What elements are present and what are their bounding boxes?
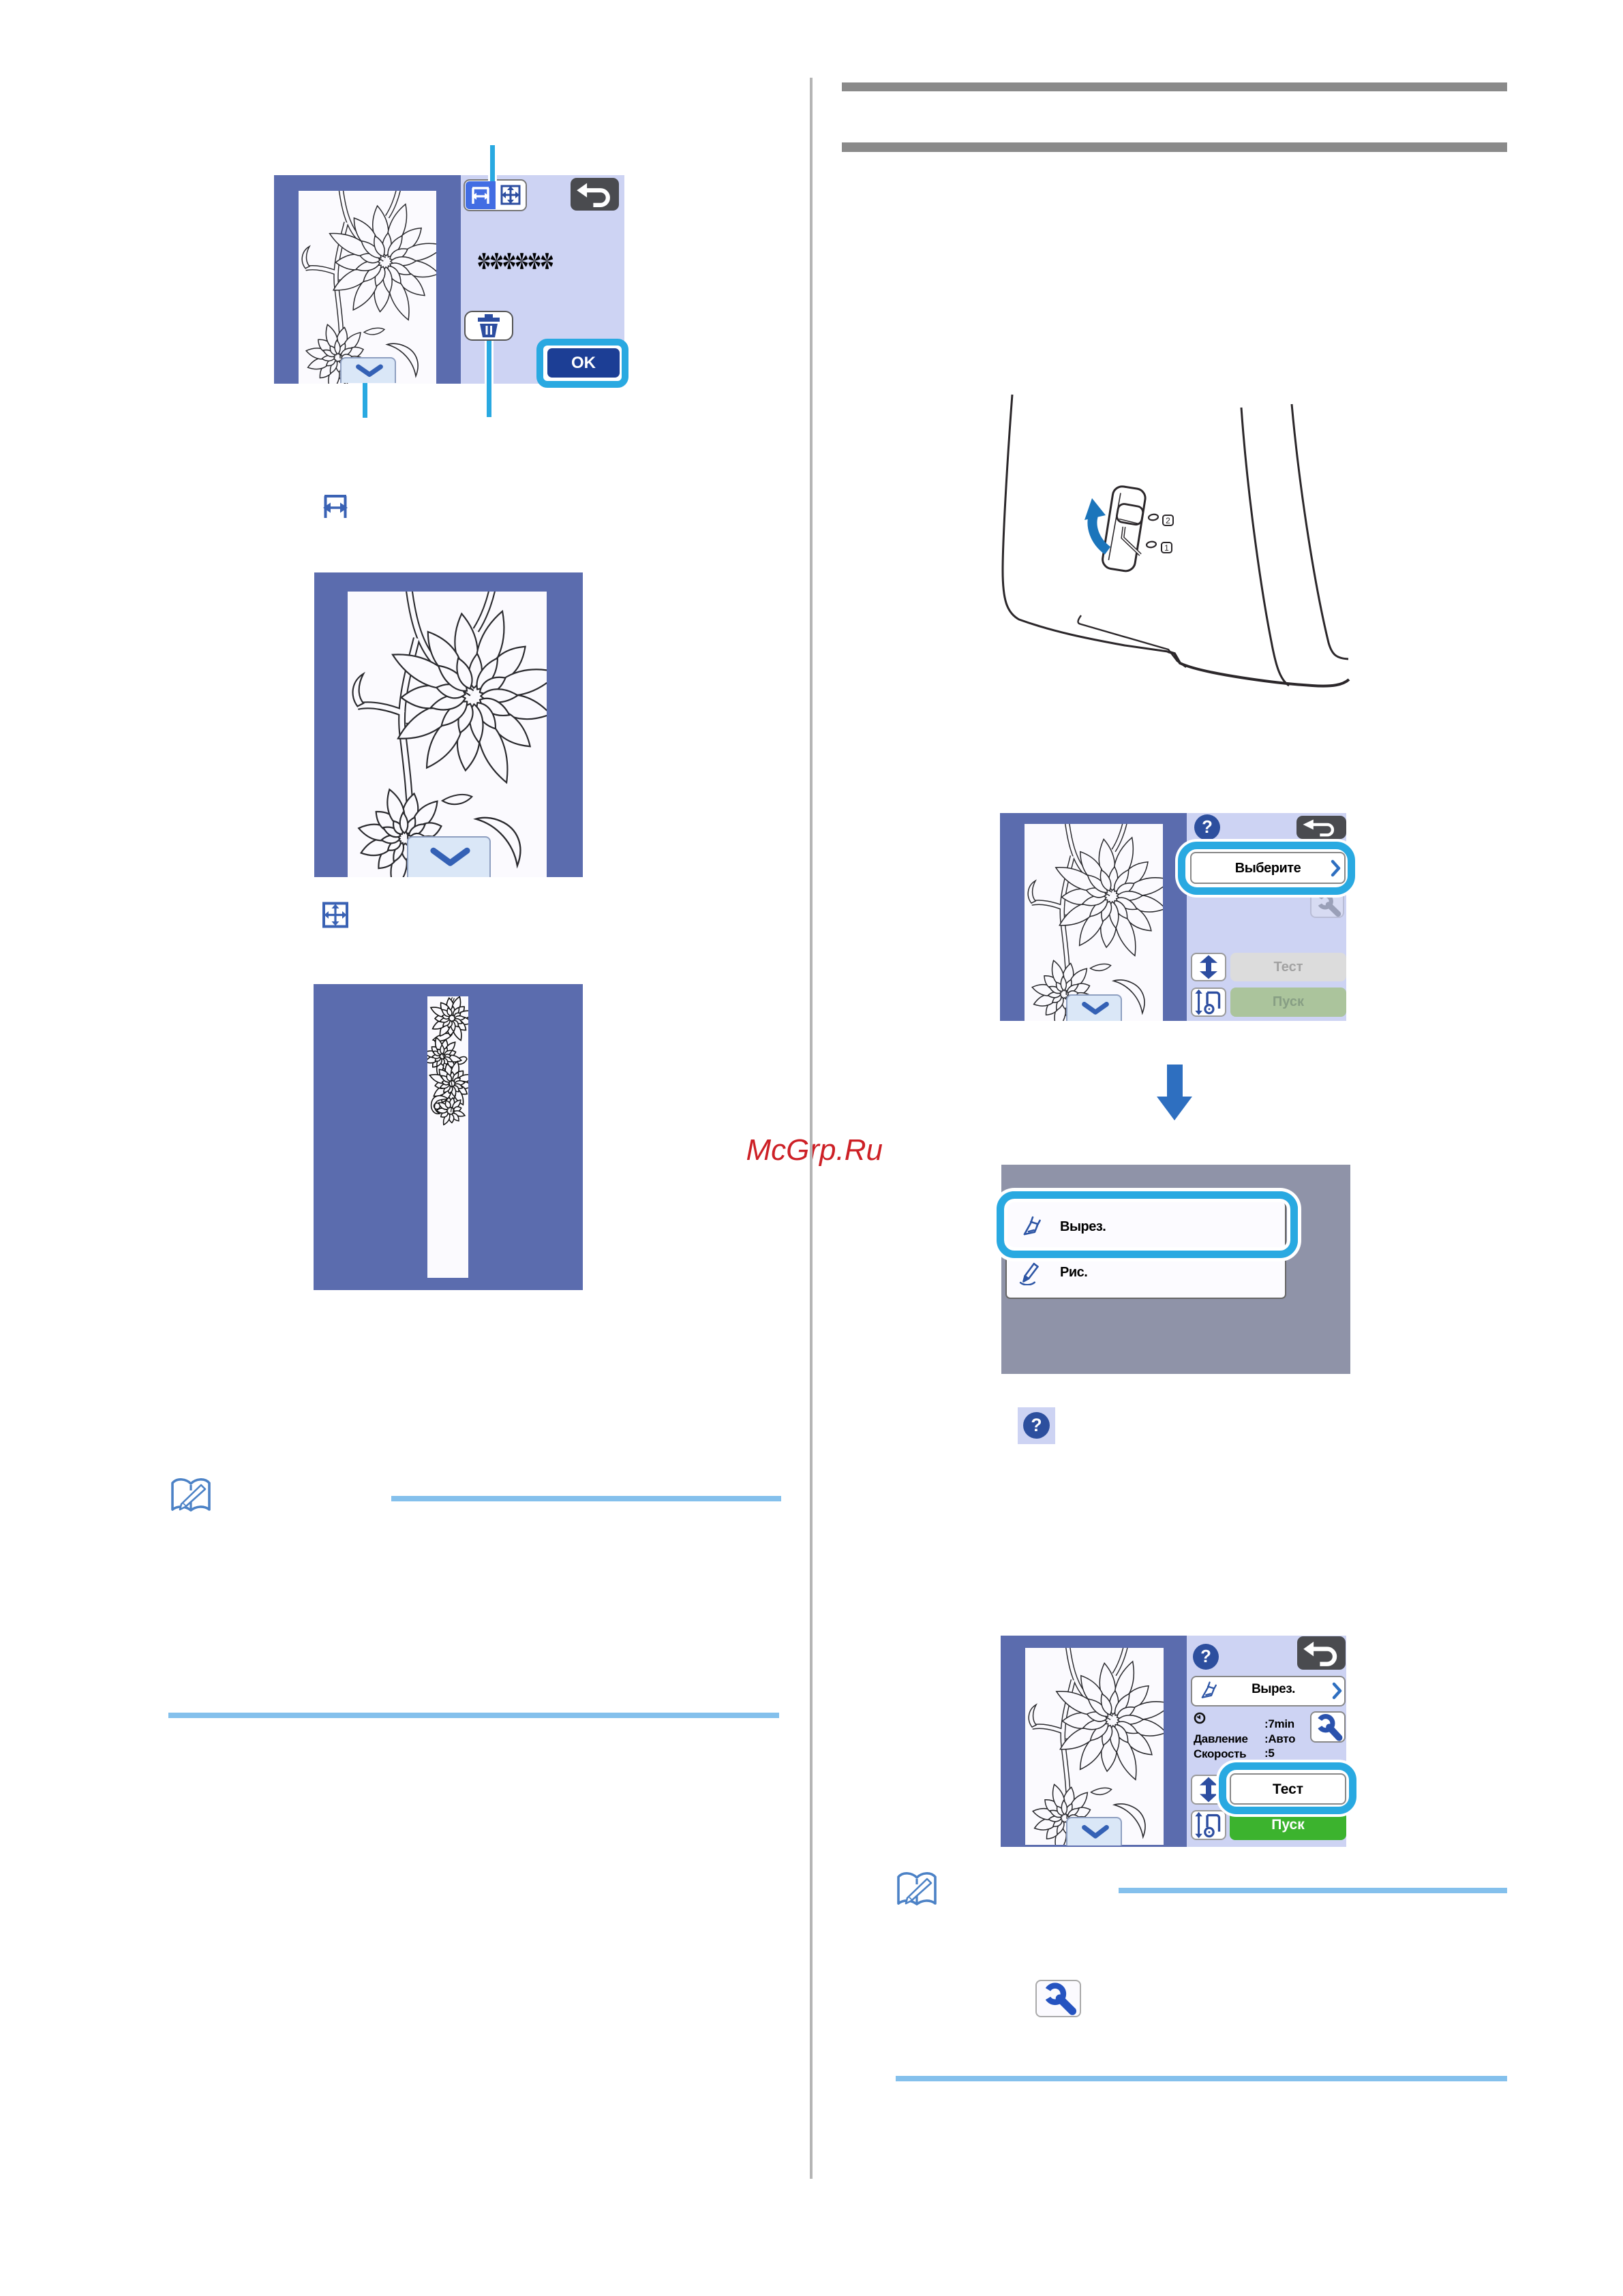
svg-text:2: 2 [1166, 516, 1170, 525]
svg-text:1: 1 [1164, 543, 1169, 553]
